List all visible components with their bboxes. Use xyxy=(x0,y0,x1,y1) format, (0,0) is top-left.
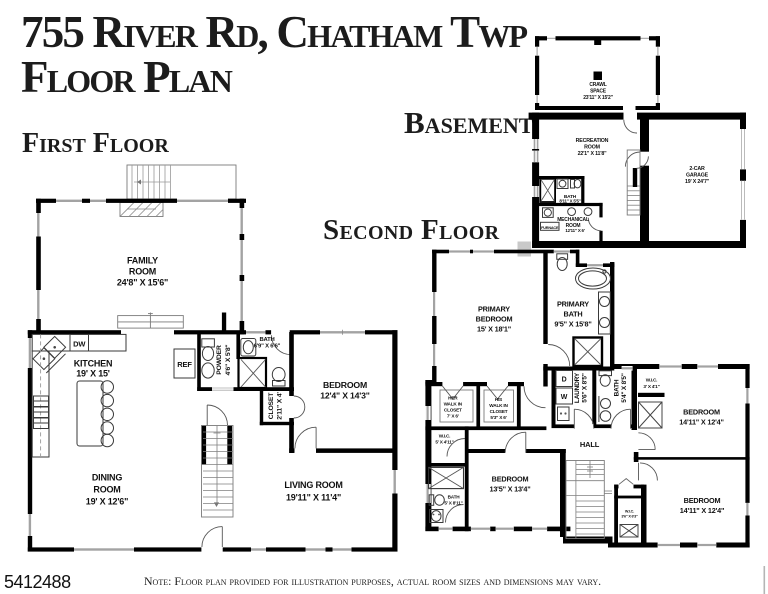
svg-text:BATH: BATH xyxy=(564,310,583,319)
svg-text:5' X 8'11": 5' X 8'11" xyxy=(444,501,462,506)
svg-text:2-CAR: 2-CAR xyxy=(689,166,705,172)
svg-text:First Floor: First Floor xyxy=(22,128,169,159)
svg-text:3'6" X 6'3": 3'6" X 6'3" xyxy=(621,515,638,519)
svg-text:5'3" X 6': 5'3" X 6' xyxy=(490,415,506,420)
svg-text:PRIMARY: PRIMARY xyxy=(557,300,589,309)
svg-text:7' X 6': 7' X 6' xyxy=(447,414,459,419)
svg-text:4'6" X 5'8": 4'6" X 5'8" xyxy=(225,345,232,376)
svg-text:CLOSET: CLOSET xyxy=(444,408,462,413)
svg-text:ROOM: ROOM xyxy=(93,485,120,495)
svg-text:14'11" X 12'4": 14'11" X 12'4" xyxy=(680,506,725,515)
svg-text:D: D xyxy=(562,377,567,384)
svg-text:BATH: BATH xyxy=(259,337,274,343)
svg-text:9'5" X 15'8": 9'5" X 15'8" xyxy=(554,320,591,329)
svg-text:PRIMARY: PRIMARY xyxy=(478,305,510,314)
svg-text:Note: Floor plan provided for: Note: Floor plan provided for illustrati… xyxy=(144,574,601,588)
svg-text:Second Floor: Second Floor xyxy=(323,214,500,246)
svg-text:DW: DW xyxy=(73,340,86,349)
svg-text:23'11" X 15'2": 23'11" X 15'2" xyxy=(583,95,613,101)
svg-text:19' X 24'7": 19' X 24'7" xyxy=(685,179,710,185)
svg-text:BEDROOM: BEDROOM xyxy=(476,315,513,324)
svg-text:5' X 4'11": 5' X 4'11" xyxy=(435,440,453,445)
svg-text:BEDROOM: BEDROOM xyxy=(684,496,721,505)
svg-text:ROOM: ROOM xyxy=(129,267,156,277)
svg-text:HALL: HALL xyxy=(580,440,600,449)
svg-text:24'8" X 15'6": 24'8" X 15'6" xyxy=(117,278,168,288)
svg-text:KITCHEN: KITCHEN xyxy=(74,359,113,369)
svg-text:SPACE: SPACE xyxy=(590,89,607,95)
svg-text:755 River Rd, Chatham Twp: 755 River Rd, Chatham Twp xyxy=(21,7,528,57)
svg-text:6'9" X 6'6": 6'9" X 6'6" xyxy=(254,344,281,350)
svg-text:WALK IN: WALK IN xyxy=(444,402,463,407)
svg-text:5'6" X 8'5": 5'6" X 8'5" xyxy=(581,373,588,403)
svg-text:22'1" X 11'8": 22'1" X 11'8" xyxy=(578,151,607,157)
svg-text:3' X 4'1": 3' X 4'1" xyxy=(643,384,659,389)
svg-text:19' X 12'6": 19' X 12'6" xyxy=(86,497,128,507)
svg-text:BEDROOM: BEDROOM xyxy=(492,475,529,484)
svg-text:12'4" X 14'3": 12'4" X 14'3" xyxy=(320,391,369,401)
svg-text:WALK IN: WALK IN xyxy=(489,403,508,408)
svg-text:CLOSET: CLOSET xyxy=(268,392,275,419)
svg-text:REF: REF xyxy=(177,360,192,369)
svg-text:8'11" X 5'5": 8'11" X 5'5" xyxy=(559,199,580,204)
svg-text:HER: HER xyxy=(448,396,458,401)
svg-text:2'11" X 4': 2'11" X 4' xyxy=(277,392,284,420)
svg-text:W.I.C.: W.I.C. xyxy=(439,434,451,439)
svg-text:LAUNDRY: LAUNDRY xyxy=(574,372,581,403)
svg-text:BEDROOM: BEDROOM xyxy=(683,408,720,417)
svg-text:W.I.C.: W.I.C. xyxy=(625,510,634,514)
svg-text:W.I.C.: W.I.C. xyxy=(646,378,658,383)
svg-text:BATH: BATH xyxy=(448,495,461,500)
svg-text:5412488: 5412488 xyxy=(4,572,71,592)
svg-text:GARAGE: GARAGE xyxy=(686,173,709,179)
svg-text:FURNACE: FURNACE xyxy=(541,226,559,230)
svg-text:15' X 18'1": 15' X 18'1" xyxy=(477,325,511,334)
svg-text:12'11" X 6': 12'11" X 6' xyxy=(565,228,584,233)
svg-text:Basement: Basement xyxy=(404,105,534,140)
svg-text:13'5" X 13'4": 13'5" X 13'4" xyxy=(489,485,530,494)
svg-text:19' X 15': 19' X 15' xyxy=(76,369,110,379)
svg-text:BATH: BATH xyxy=(614,379,621,396)
svg-text:Floor Plan: Floor Plan xyxy=(21,52,233,102)
svg-text:14'11" X 12'4": 14'11" X 12'4" xyxy=(679,418,724,427)
svg-text:5'4" X 8'5": 5'4" X 8'5" xyxy=(621,373,628,403)
svg-text:FAMILY: FAMILY xyxy=(127,256,158,266)
svg-text:BEDROOM: BEDROOM xyxy=(323,380,367,390)
svg-text:LIVING ROOM: LIVING ROOM xyxy=(284,480,342,490)
svg-text:W: W xyxy=(561,394,568,401)
svg-text:19'11" X 11'4": 19'11" X 11'4" xyxy=(286,493,341,503)
svg-text:DINING: DINING xyxy=(92,473,122,483)
svg-text:CRAWL: CRAWL xyxy=(589,82,606,88)
svg-text:RECREATION: RECREATION xyxy=(576,138,609,144)
svg-text:HIS: HIS xyxy=(495,397,502,402)
svg-text:POWDER: POWDER xyxy=(216,345,223,375)
svg-text:ROOM: ROOM xyxy=(584,145,600,151)
svg-text:CLOSET: CLOSET xyxy=(490,409,508,414)
